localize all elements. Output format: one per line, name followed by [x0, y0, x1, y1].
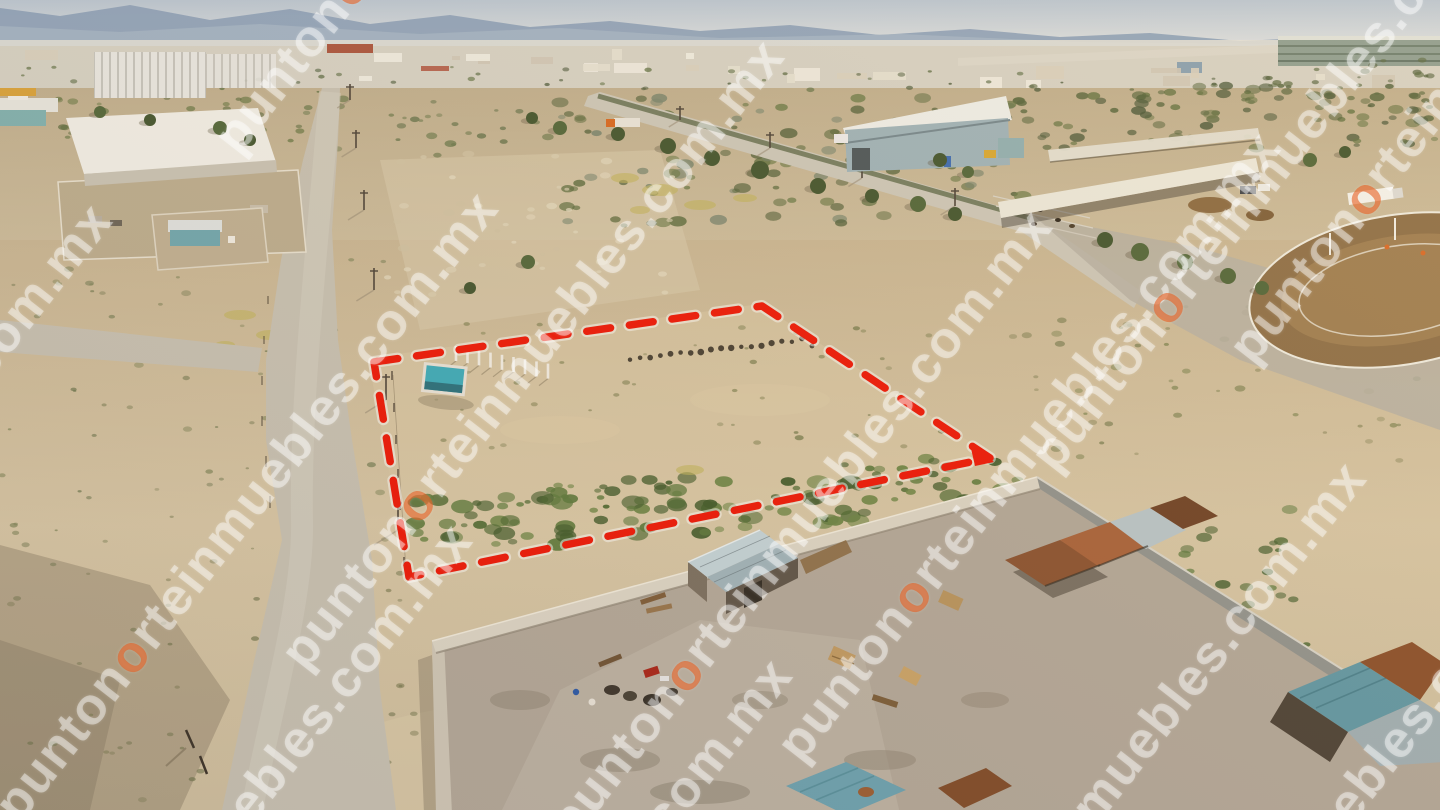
- color-grade-overlay: [0, 0, 1440, 810]
- scene-svg: [0, 0, 1440, 810]
- aerial-photo: puntonorteinmuebles.com.mxpuntonorteinmu…: [0, 0, 1440, 810]
